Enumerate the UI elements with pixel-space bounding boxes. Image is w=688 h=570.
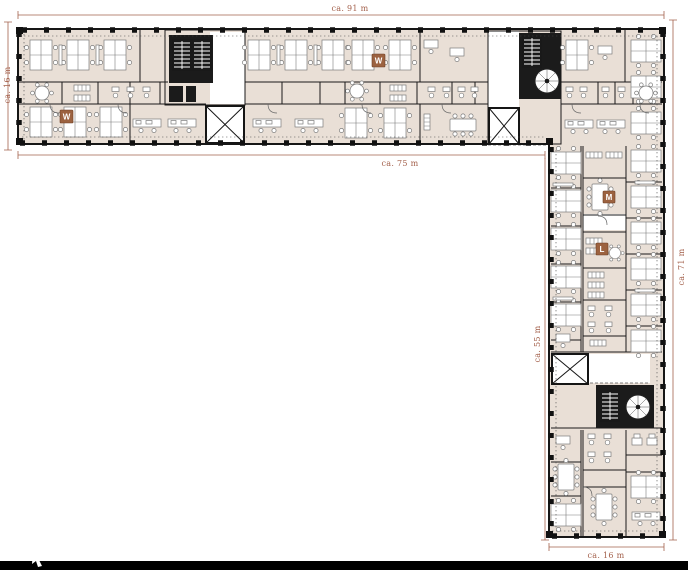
kitchen-counter bbox=[588, 292, 604, 298]
room-marker-letter: L bbox=[600, 245, 605, 254]
kitchen-counter bbox=[390, 85, 406, 91]
kitchen-counter bbox=[606, 152, 622, 158]
sideboard bbox=[96, 45, 99, 65]
stair-core-south bbox=[596, 385, 654, 428]
sideboard bbox=[59, 45, 62, 65]
room-marker-l: L bbox=[596, 243, 608, 255]
kitchen-counter bbox=[590, 340, 606, 346]
bottom-bar bbox=[0, 561, 688, 570]
kitchen-counter bbox=[74, 85, 90, 91]
room-marker-letter: W bbox=[375, 57, 383, 66]
sideboard bbox=[635, 181, 655, 184]
sideboard bbox=[277, 45, 280, 65]
dim-label-inner-width: ca. 75 m bbox=[381, 159, 418, 168]
kitchen-counter bbox=[74, 95, 90, 101]
floor-plan-drawing: W W M L ca. 91 m ca. 16 m ca. 75 m ca. 5… bbox=[0, 0, 688, 570]
room-marker-letter: M bbox=[606, 193, 613, 202]
kitchen-counter bbox=[588, 282, 604, 288]
dim-label-inner-height: ca. 55 m bbox=[533, 325, 542, 362]
kitchen-counter bbox=[390, 95, 406, 101]
staircase-x-b bbox=[489, 108, 519, 144]
room-marker-w1: W bbox=[60, 110, 73, 123]
meeting-table bbox=[450, 114, 476, 136]
dim-label-top: ca. 91 m bbox=[331, 4, 368, 13]
floor-plan-canvas: W W M L ca. 91 m ca. 16 m ca. 75 m ca. 5… bbox=[0, 0, 688, 570]
room-marker-m: M bbox=[603, 191, 615, 203]
kitchen-counter bbox=[588, 272, 604, 278]
sideboard bbox=[635, 289, 655, 292]
stair-core-junction bbox=[519, 33, 561, 99]
kitchen-counter bbox=[586, 152, 602, 158]
dim-label-left: ca. 16 m bbox=[3, 66, 12, 103]
room-marker-letter: W bbox=[63, 113, 71, 122]
staircase-x-a bbox=[206, 106, 244, 143]
sideboard bbox=[314, 45, 317, 65]
room-marker-w2: W bbox=[372, 54, 385, 67]
dim-label-right: ca. 71 m bbox=[677, 248, 686, 285]
sideboard bbox=[553, 183, 573, 186]
staircase-x-c bbox=[552, 354, 588, 384]
dim-label-bottom: ca. 16 m bbox=[587, 551, 624, 560]
standing-table bbox=[424, 114, 430, 130]
